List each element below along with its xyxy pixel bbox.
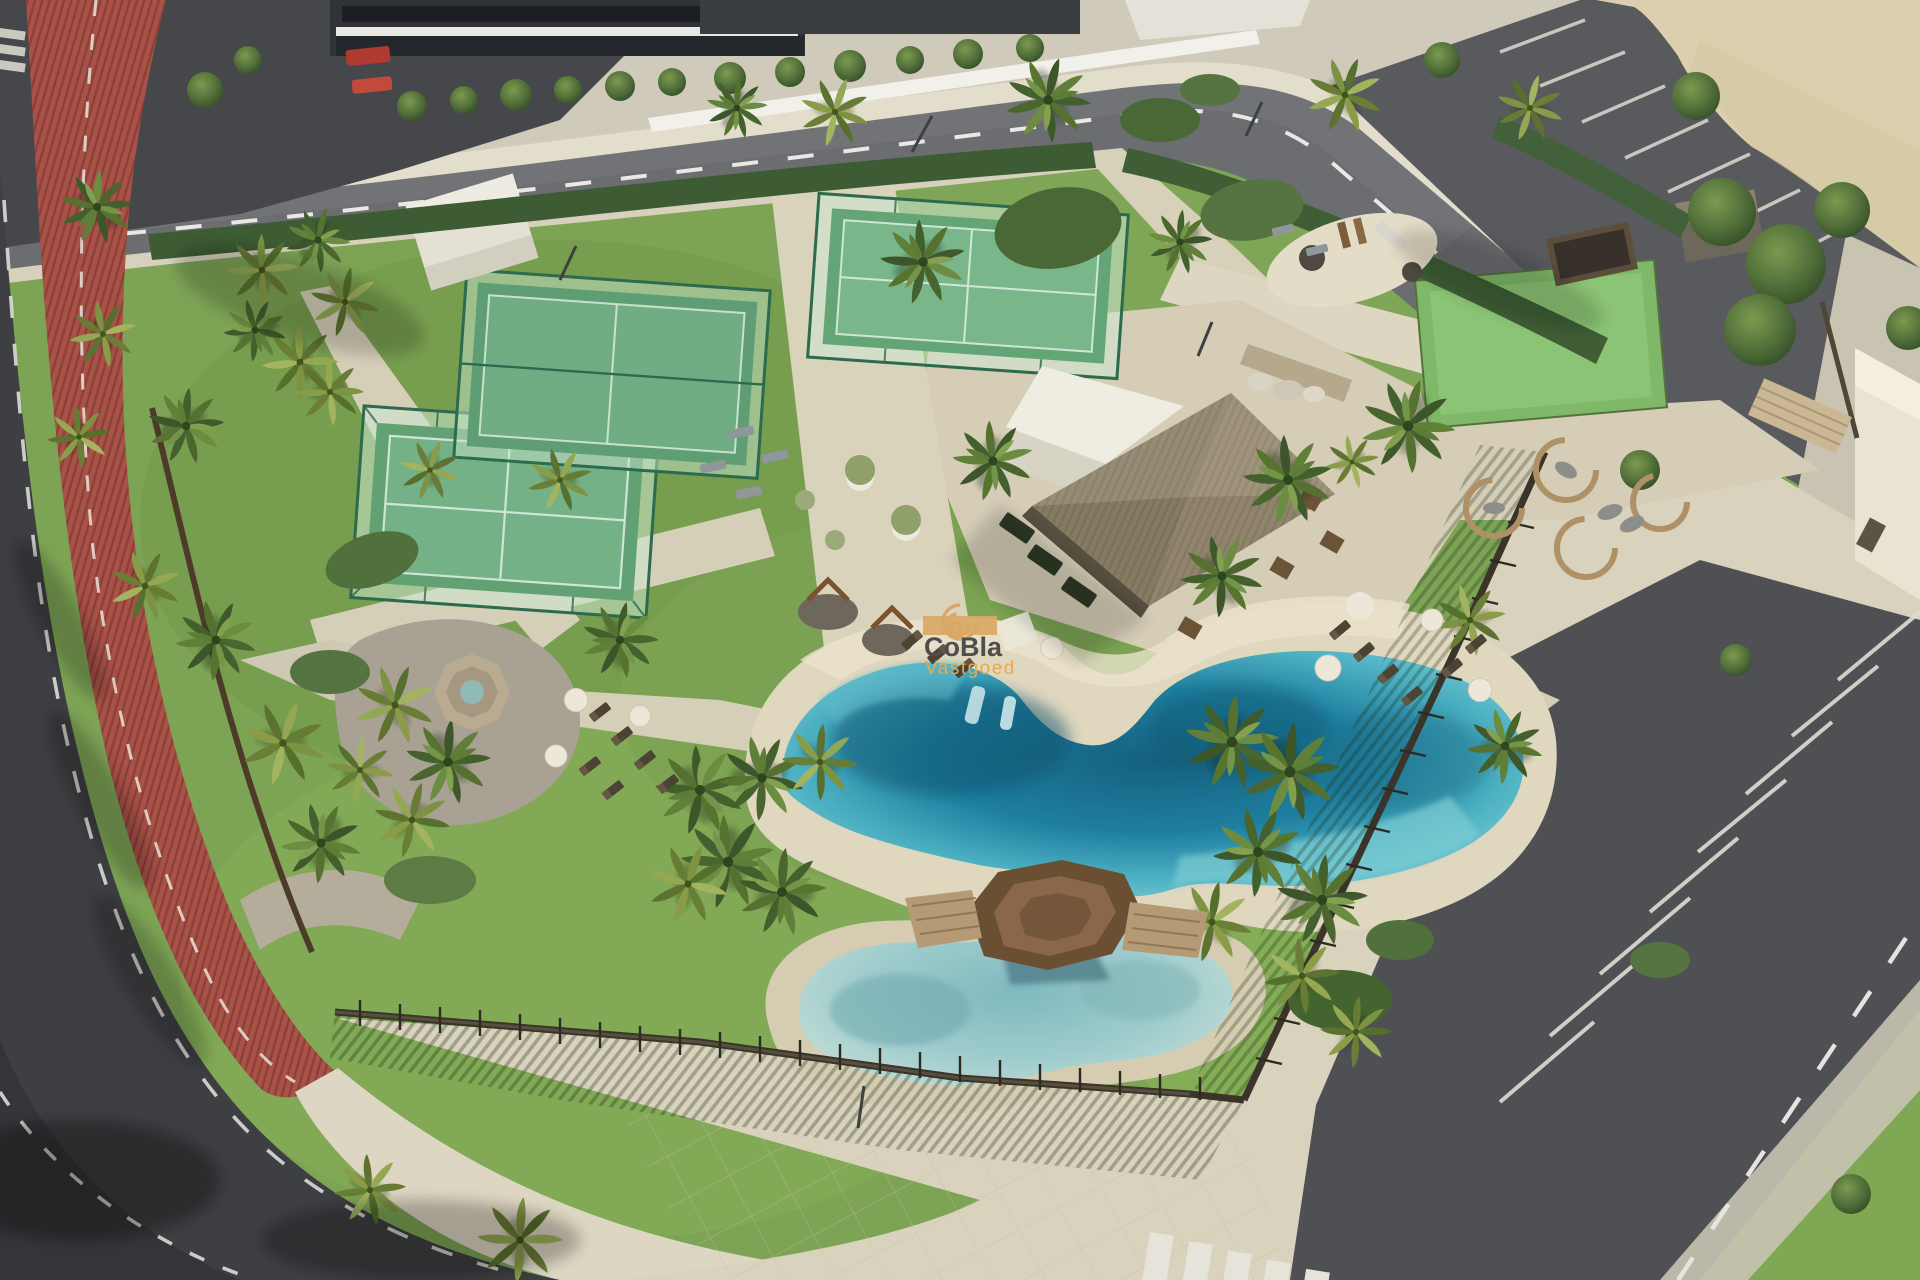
svg-text:Vastgoed: Vastgoed: [925, 658, 1016, 679]
